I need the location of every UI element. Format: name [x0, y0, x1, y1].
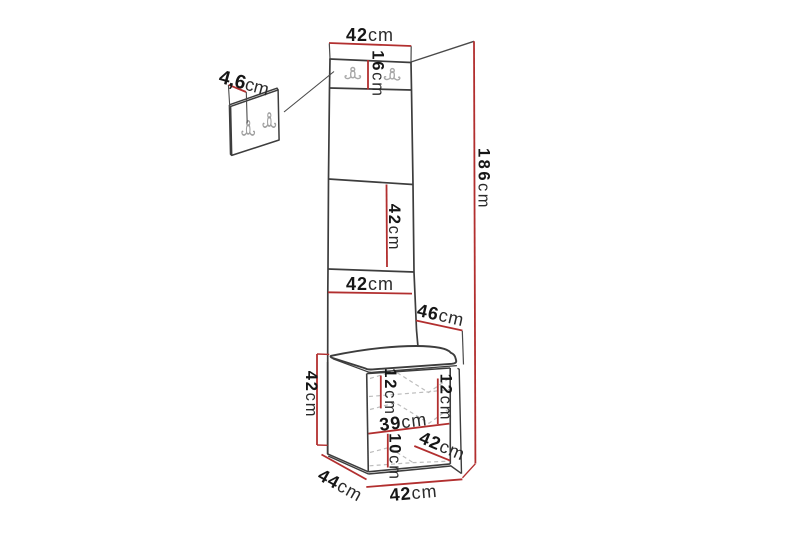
svg-text:42cm: 42cm — [389, 481, 439, 505]
svg-text:16cm: 16cm — [369, 50, 387, 98]
svg-text:186cm: 186cm — [475, 148, 493, 210]
svg-text:12cm: 12cm — [381, 368, 399, 416]
svg-text:42cm: 42cm — [385, 204, 403, 252]
svg-text:10cm: 10cm — [386, 433, 404, 481]
svg-text:42cm: 42cm — [302, 371, 320, 419]
svg-text:12cm: 12cm — [436, 374, 454, 422]
svg-text:42cm: 42cm — [346, 274, 394, 294]
svg-text:42cm: 42cm — [346, 25, 394, 45]
